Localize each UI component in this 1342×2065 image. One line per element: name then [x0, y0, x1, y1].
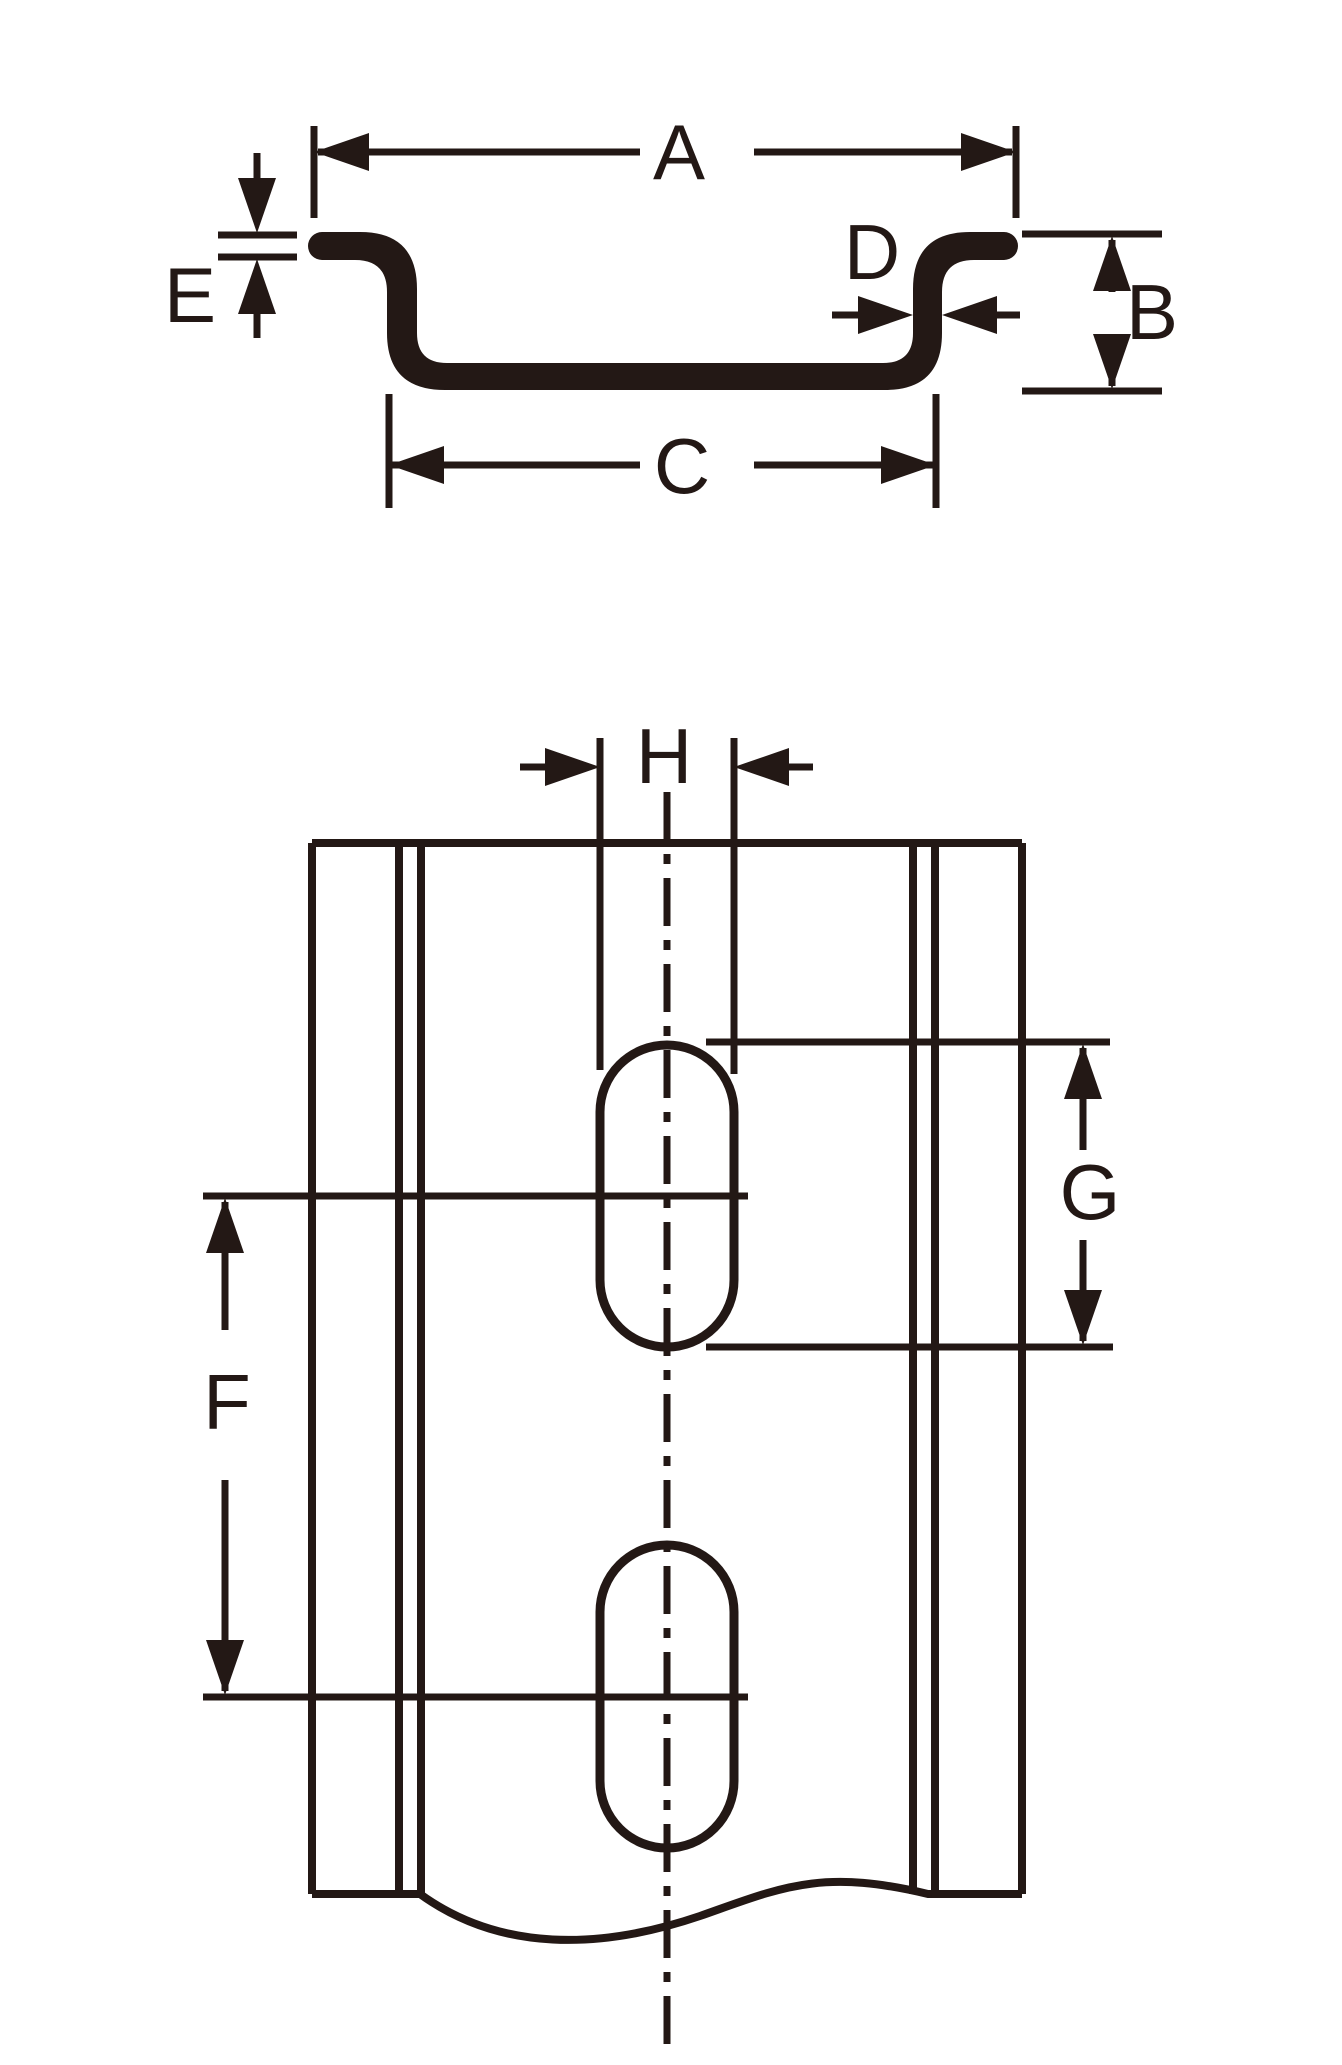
dim-H-arrowhead-right: [545, 748, 600, 786]
break-line: [420, 1882, 928, 1940]
dimension-C: C: [389, 394, 936, 510]
dim-F-arrowhead-up: [206, 1198, 244, 1253]
front-view: H G F: [203, 712, 1120, 2046]
rail-profile-shape: [308, 232, 1018, 390]
dim-F-arrowhead-down: [206, 1640, 244, 1695]
dim-C-arrowhead-right: [881, 446, 936, 484]
dim-label-G: G: [1060, 1148, 1121, 1236]
dim-label-F: F: [203, 1358, 251, 1446]
dim-C-arrowhead-left: [389, 446, 444, 484]
dim-label-H: H: [636, 712, 692, 800]
dim-label-D: D: [844, 208, 900, 296]
dim-E-arrowhead-up: [238, 259, 276, 314]
dim-A-arrowhead-right: [961, 133, 1016, 171]
drawing-page: A B C D: [0, 0, 1342, 2065]
dimension-F: F: [203, 1196, 748, 1697]
dim-A-arrowhead-left: [314, 133, 369, 171]
dimension-E: E: [164, 153, 297, 339]
dim-label-A: A: [653, 108, 705, 196]
dim-label-B: B: [1126, 268, 1178, 356]
dim-label-E: E: [164, 251, 216, 339]
cross-section-view: A B C D: [164, 108, 1178, 510]
dimension-A: A: [314, 108, 1016, 218]
dimension-B: B: [1022, 234, 1178, 391]
dim-D-arrowhead-right: [858, 296, 913, 334]
dim-label-C: C: [654, 422, 710, 510]
dim-H-arrowhead-left: [734, 748, 789, 786]
din-rail-dimension-drawing: A B C D: [0, 0, 1342, 2065]
dim-E-arrowhead-down: [238, 178, 276, 233]
dim-G-arrowhead-down: [1064, 1290, 1102, 1345]
dim-G-arrowhead-up: [1064, 1044, 1102, 1099]
